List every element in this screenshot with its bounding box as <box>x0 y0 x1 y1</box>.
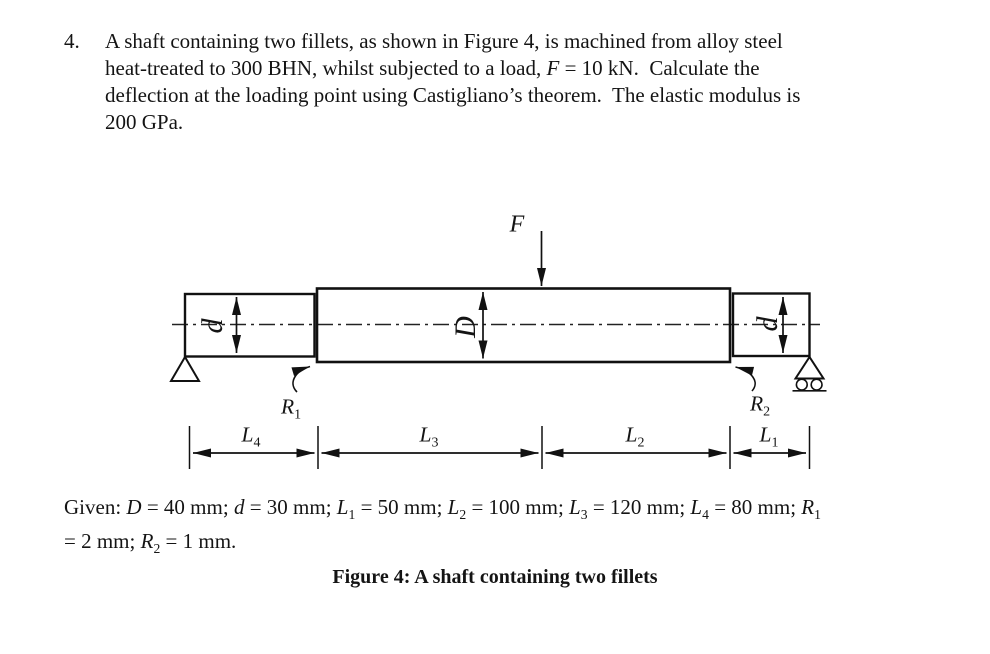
shaft-section-center <box>317 289 730 363</box>
roller-wheel-left <box>796 379 807 390</box>
fillet-arrow-r2 <box>736 367 756 391</box>
roller-wheel-right <box>811 379 822 390</box>
given-line-1: Given: D = 40 mm; d = 30 mm; L1 = 50 mm;… <box>64 494 929 528</box>
given-line-2: = 2 mm; R2 = 1 mm. <box>64 528 929 562</box>
dimension-ticks <box>190 426 810 469</box>
diameter-label-small-left: d <box>196 319 230 334</box>
roller-triangle <box>796 357 824 379</box>
document-page: 4. A shaft containing two fillets, as sh… <box>0 0 990 654</box>
length-label-l2: L2 <box>626 422 645 451</box>
roller-support <box>793 357 827 391</box>
force-label: F <box>510 212 525 239</box>
length-label-l3: L3 <box>420 422 439 451</box>
length-label-l4: L4 <box>242 422 261 451</box>
fillet-radius-label-r1: R1 <box>281 394 301 423</box>
length-label-l1: L1 <box>760 422 779 451</box>
given-data: Given: D = 40 mm; d = 30 mm; L1 = 50 mm;… <box>64 494 929 562</box>
diameter-label-large: D <box>449 316 483 338</box>
fillet-radius-label-r2: R2 <box>750 391 770 420</box>
fillet-arrow-r1 <box>293 367 310 393</box>
figure-caption: Figure 4: A shaft containing two fillets <box>0 566 990 589</box>
pin-support <box>171 357 199 381</box>
diameter-label-small-right: d <box>751 317 785 332</box>
